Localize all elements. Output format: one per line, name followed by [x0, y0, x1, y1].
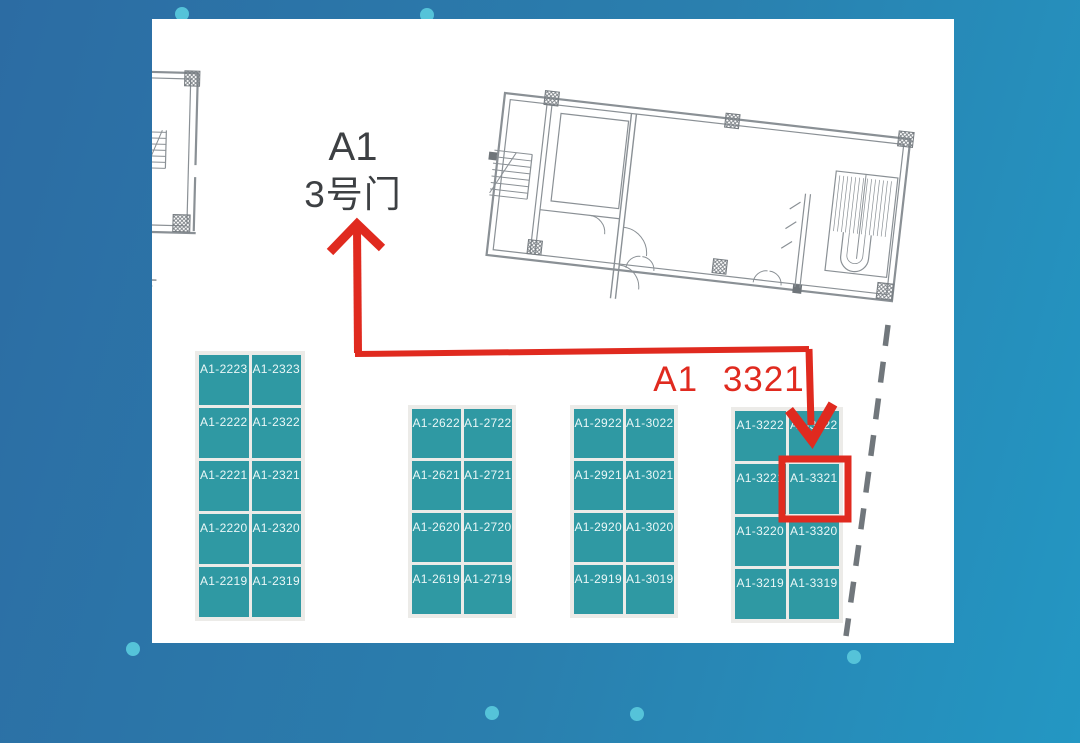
booth-A1-2721: A1-2721: [464, 461, 513, 510]
booth-A1-2320: A1-2320: [252, 514, 302, 564]
booth-A1-3020: A1-3020: [626, 513, 675, 562]
booth-A1-2919: A1-2919: [574, 565, 623, 614]
escalator-icon: [777, 166, 898, 297]
booth-A1-2922: A1-2922: [574, 409, 623, 458]
gate-arrow-head-icon: [330, 224, 382, 252]
booth-A1-3219: A1-3219: [735, 569, 786, 619]
gate-label: A1 3号门: [278, 123, 428, 217]
gate-door-text: 3号门: [278, 172, 428, 217]
dashed-boundary-line: [846, 325, 888, 636]
booth-A1-3222: A1-3222: [735, 411, 786, 461]
decor-dot: [485, 706, 499, 720]
route-line-horizontal: [355, 349, 809, 354]
booth-A1-3321-highlighted: A1-3321: [789, 464, 840, 514]
booth-group-3200-3300: A1-3222A1-3322A1-3221A1-3321A1-3220A1-33…: [731, 407, 843, 623]
booth-A1-2220: A1-2220: [199, 514, 249, 564]
booth-A1-3021: A1-3021: [626, 461, 675, 510]
booth-A1-3019: A1-3019: [626, 565, 675, 614]
booth-A1-3221: A1-3221: [735, 464, 786, 514]
booth-A1-2321: A1-2321: [252, 461, 302, 511]
booth-A1-2719: A1-2719: [464, 565, 513, 614]
booth-A1-3322: A1-3322: [789, 411, 840, 461]
booth-group-2600-2700: A1-2622A1-2722A1-2621A1-2721A1-2620A1-27…: [408, 405, 516, 618]
booth-A1-2219: A1-2219: [199, 567, 249, 617]
decor-dot: [630, 707, 644, 721]
booth-A1-2221: A1-2221: [199, 461, 249, 511]
booth-A1-2322: A1-2322: [252, 408, 302, 458]
decor-dot: [126, 642, 140, 656]
booth-A1-2319: A1-2319: [252, 567, 302, 617]
booth-group-2200-2300: A1-2223A1-2323A1-2222A1-2322A1-2221A1-23…: [195, 351, 305, 621]
gate-arrow-shaft: [357, 227, 358, 353]
booth-A1-2620: A1-2620: [412, 513, 461, 562]
stairs-icon: [489, 150, 532, 199]
booth-A1-3220: A1-3220: [735, 517, 786, 567]
booth-A1-3022: A1-3022: [626, 409, 675, 458]
booth-A1-2223: A1-2223: [199, 355, 249, 405]
booth-A1-2619: A1-2619: [412, 565, 461, 614]
booth-A1-3319: A1-3319: [789, 569, 840, 619]
booth-A1-2720: A1-2720: [464, 513, 513, 562]
booth-A1-2621: A1-2621: [412, 461, 461, 510]
floor-map-panel: A1 3号门 A1-2223A1-2323A1-2222A1-2322A1-22…: [152, 19, 954, 643]
booth-A1-3320: A1-3320: [789, 517, 840, 567]
target-booth-label: A1 3321: [644, 360, 814, 400]
booth-A1-2222: A1-2222: [199, 408, 249, 458]
booth-group-2900-3000: A1-2922A1-3022A1-2921A1-3021A1-2920A1-30…: [570, 405, 678, 618]
left-hall-outline: [152, 70, 200, 287]
main-hall-outline: [474, 85, 914, 330]
gate-hall-text: A1: [278, 123, 428, 172]
stairs-icon: [152, 130, 166, 171]
booth-A1-2622: A1-2622: [412, 409, 461, 458]
page-background: A1 3号门 A1-2223A1-2323A1-2222A1-2322A1-22…: [0, 0, 1080, 743]
booth-A1-2722: A1-2722: [464, 409, 513, 458]
booth-A1-2921: A1-2921: [574, 461, 623, 510]
decor-dot: [847, 650, 861, 664]
booth-A1-2323: A1-2323: [252, 355, 302, 405]
booth-A1-2920: A1-2920: [574, 513, 623, 562]
